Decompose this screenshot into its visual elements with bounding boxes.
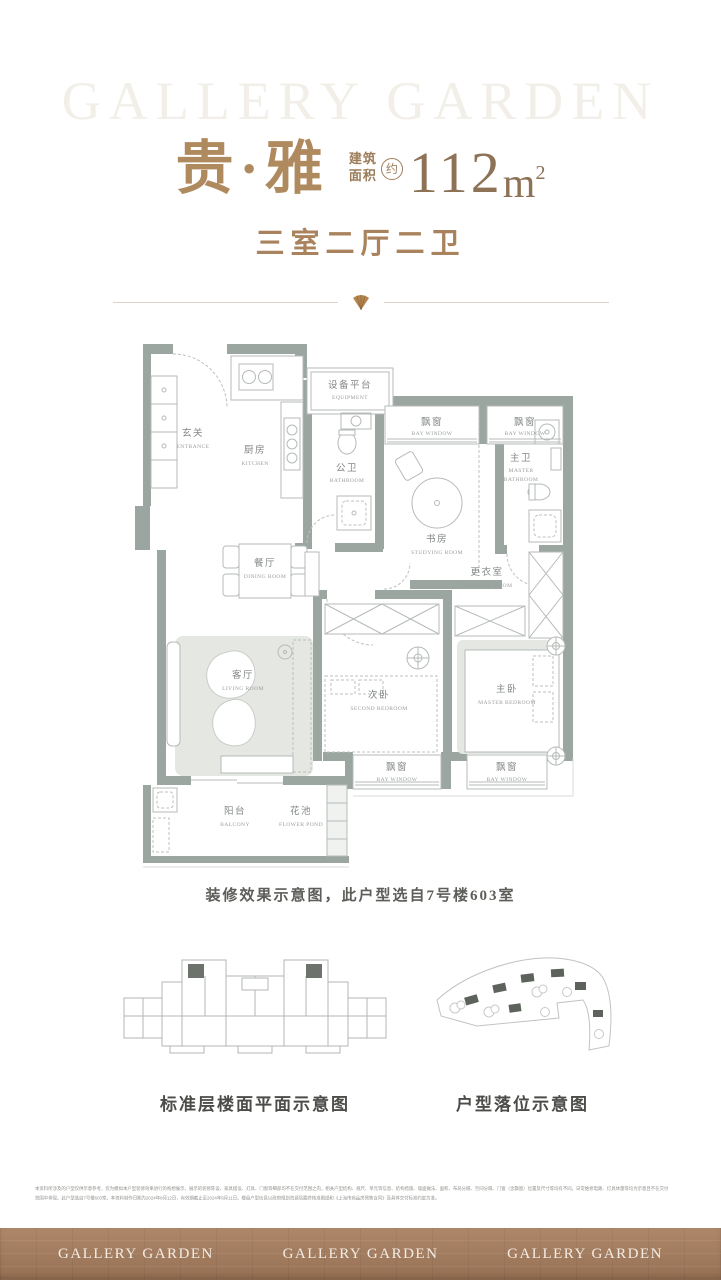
unit-location-label: 户型落位示意图 (425, 1090, 620, 1115)
footer-bar: GALLERY GARDEN GALLERY GARDEN GALLERY GA… (0, 1228, 721, 1280)
disclaimer-text: 本资料所涉及的户型仅供示意参考，仅为模拟本户型装修效果进行的构想展示，展示的装修… (35, 1184, 686, 1203)
study-label-cn: 书房 (426, 533, 448, 545)
gem-icon (350, 293, 372, 311)
master-bath-label-en2: BATHROOM (504, 477, 539, 483)
unit-location-svg (425, 948, 620, 1073)
living-label-en: LIVING ROOM (222, 686, 264, 692)
area-label: 建筑 面积 (349, 150, 377, 184)
area-label-line1: 建筑 (349, 150, 377, 167)
divider-line-right (384, 302, 609, 303)
unit-name-title: 贵·雅 (176, 138, 329, 200)
standard-floor-diagram: 标准层楼面平面示意图 (110, 948, 400, 1115)
equipment-label-en: EQUIPMENT (332, 395, 368, 401)
master-bedroom-label-cn: 主卧 (496, 683, 518, 695)
equipment-label-cn: 设备平台 (328, 379, 372, 391)
area-value: 112 (409, 144, 503, 202)
standard-floor-svg (110, 948, 400, 1073)
bay-window-bottom-secondbed: 飘窗 BAY WINDOW (353, 755, 441, 789)
approx-circle-badge: 约 (381, 158, 403, 180)
master-bedroom-label-en: MASTER BEDROOM (478, 700, 536, 706)
kitchen-label-en: KITCHEN (241, 461, 268, 467)
master-bath-label-cn: 主卫 (510, 452, 532, 464)
poster-page: GALLERY GARDEN 贵·雅 建筑 面积 约 112 m2 三室二厅二卫 (0, 0, 721, 1280)
balcony-label-en: BALCONY (220, 822, 250, 828)
layout-subtitle: 三室二厅二卫 (0, 220, 721, 262)
dining-label-en: DINING ROOM (244, 574, 286, 580)
dressing-label-cn: 更衣室 (470, 566, 503, 578)
balcony-label-cn: 阳台 (224, 805, 246, 817)
second-bedroom-label-en: SECOND BEDROOM (350, 706, 407, 712)
master-bath-label-en1: MASTER (508, 468, 533, 474)
dining-area: 餐厅 DINING ROOM (223, 544, 319, 598)
footer-brand-text: GALLERY GARDEN (283, 1246, 439, 1263)
study-label-en: STUDYING ROOM (411, 550, 463, 556)
footer-brand-text: GALLERY GARDEN (507, 1246, 663, 1263)
title-row: 贵·雅 建筑 面积 约 112 m2 (0, 138, 721, 213)
bay-label-en: BAY WINDOW (487, 777, 528, 783)
area-label-line2: 面积 (349, 167, 377, 184)
second-bedroom-area: 次卧 SECOND BEDROOM (325, 604, 439, 752)
bay-label-cn: 飘窗 (386, 761, 408, 773)
public-bathroom-area: 公卫 BATHROOM (330, 413, 371, 530)
standard-floor-label: 标准层楼面平面示意图 (110, 1090, 400, 1115)
bay-window-top-study: 飘窗 BAY WINDOW (385, 406, 479, 444)
kitchen-label-cn: 厨房 (244, 444, 266, 456)
area-group: 建筑 面积 约 112 m2 (349, 144, 546, 213)
unit-location-diagram: 户型落位示意图 (425, 948, 620, 1115)
flower-pond-label-cn: 花池 (290, 805, 312, 817)
area-unit-exponent: 2 (535, 162, 545, 184)
equipment-platform: 设备平台 EQUIPMENT (307, 368, 393, 414)
bay-window-bottom-masterbed: 飘窗 BAY WINDOW (467, 755, 547, 789)
second-bedroom-label-cn: 次卧 (368, 689, 390, 701)
flower-pond-label-en: FLOWER POND (279, 822, 323, 828)
kitchen-area: 厨房 KITCHEN (231, 356, 303, 498)
floorplan-caption: 装修效果示意图，此户型选自7号楼603室 (0, 884, 721, 905)
bay-label-cn: 飘窗 (514, 416, 536, 428)
public-bath-label-en: BATHROOM (330, 478, 365, 484)
balcony-area: 阳台 BALCONY 花池 FLOWER POND (153, 780, 347, 856)
entrance-label-cn: 玄关 (182, 427, 204, 439)
entrance-label-en: ENTRANCE (176, 444, 209, 450)
master-bedroom-area: 主卧 MASTER BEDROOM (457, 637, 565, 765)
disclaimer-line1: 本资料所涉及的户型仅供示意参考，仅为模拟本户型装修效果进行的构想展示，展示的装修… (35, 1184, 686, 1194)
area-unit: m2 (503, 144, 546, 213)
watermark-brand-text: GALLERY GARDEN (0, 70, 721, 132)
disclaimer-line2: 范围中体现。此户型选自7号楼603室。本资料制作日期为2024年8月12日，有效… (35, 1194, 686, 1204)
bay-label-en: BAY WINDOW (412, 431, 453, 437)
bay-label-en: BAY WINDOW (377, 777, 418, 783)
entrance-area: 玄关 ENTRANCE (151, 376, 210, 488)
divider-line-left (113, 302, 338, 303)
dressing-label-en: DRESSING ROOM (462, 583, 513, 589)
area-unit-letter: m (503, 161, 536, 207)
living-label-cn: 客厅 (232, 669, 254, 681)
public-bath-label-cn: 公卫 (336, 463, 358, 474)
bay-label-cn: 飘窗 (421, 416, 443, 428)
footer-brand-text: GALLERY GARDEN (58, 1246, 214, 1263)
bay-label-cn: 飘窗 (496, 761, 518, 773)
ornament-divider (113, 292, 609, 312)
floorplan-svg: 设备平台 EQUIPMENT 飘窗 BAY WINDOW 飘窗 BAY WIND… (135, 340, 585, 875)
dining-label-cn: 餐厅 (254, 557, 276, 569)
living-area: 客厅 LIVING ROOM (167, 636, 313, 776)
